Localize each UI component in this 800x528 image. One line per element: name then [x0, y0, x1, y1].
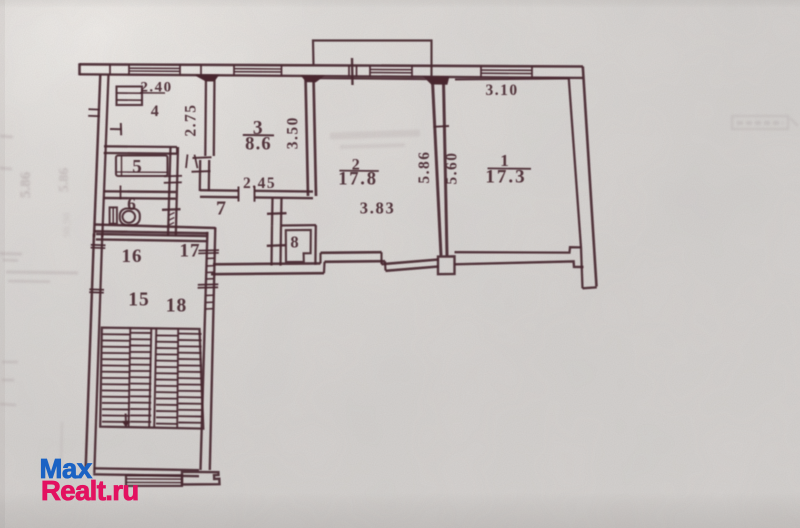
- svg-text:3.10: 3.10: [485, 82, 518, 99]
- svg-text:17: 17: [180, 241, 201, 262]
- svg-text:2.75: 2.75: [183, 103, 200, 136]
- svg-text:17.8: 17.8: [338, 170, 378, 190]
- svg-text:4: 4: [151, 103, 159, 120]
- svg-text:5.86: 5.86: [18, 171, 34, 198]
- svg-text:15: 15: [128, 290, 150, 311]
- svg-text:3.50: 3.50: [284, 116, 301, 149]
- svg-text:18: 18: [166, 296, 188, 317]
- svg-text:7: 7: [216, 198, 226, 220]
- svg-text:8: 8: [290, 233, 298, 252]
- svg-text:8.6: 8.6: [245, 134, 272, 154]
- svg-text:5: 5: [132, 157, 142, 178]
- svg-text:17.3: 17.3: [485, 167, 526, 188]
- svg-text:5.86: 5.86: [416, 150, 433, 183]
- svg-text:5.86: 5.86: [57, 168, 72, 193]
- svg-text:Realt.ru: Realt.ru: [41, 475, 139, 506]
- svg-text:3.83: 3.83: [360, 199, 396, 218]
- svg-text:16: 16: [122, 246, 143, 267]
- svg-text:98.98: 98.98: [61, 212, 73, 237]
- svg-text:2.45: 2.45: [243, 175, 276, 192]
- svg-text:6: 6: [127, 194, 136, 214]
